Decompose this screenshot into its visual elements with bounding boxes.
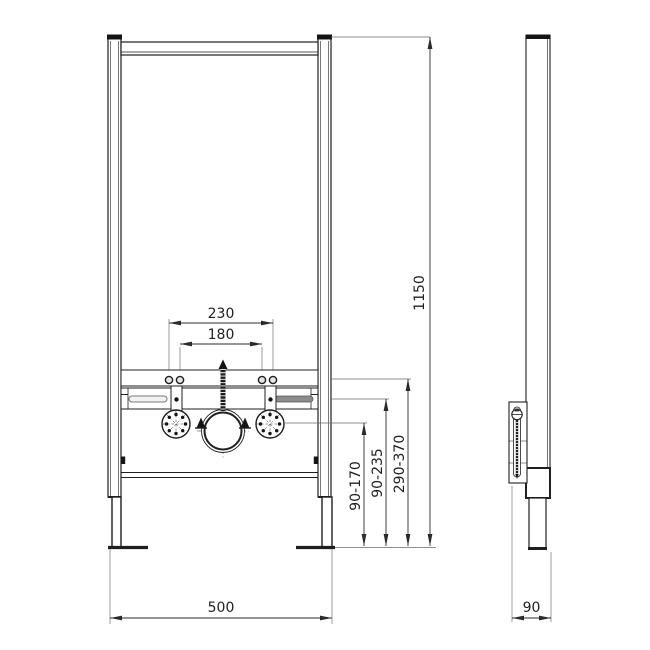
dim-label-230: 230 — [208, 306, 235, 322]
dim-label-90-235: 90-235 — [370, 448, 386, 498]
side-column — [526, 35, 551, 499]
left-foot — [108, 497, 148, 548]
fixing-bolt — [258, 376, 265, 383]
dim-label-290-370: 290-370 — [392, 435, 408, 494]
mounting-rail — [121, 388, 318, 409]
drawing-canvas: 230 180 1150 90-170 90-235 290-370 500 9… — [0, 0, 650, 650]
dim-label-180: 180 — [208, 327, 235, 343]
top-crossbeam — [121, 42, 318, 55]
side-view — [509, 35, 551, 550]
front-view — [107, 35, 335, 548]
foot-clamp-screws — [121, 457, 319, 465]
rail-slot-right — [275, 396, 313, 402]
dim-label-90: 90 — [523, 600, 541, 616]
left-post — [107, 35, 122, 498]
dim-label-90-170: 90-170 — [348, 461, 364, 511]
left-post-cap — [107, 35, 122, 40]
dim-label-1150: 1150 — [412, 275, 428, 311]
right-connection-flange — [256, 410, 284, 438]
lower-crossbar — [121, 473, 318, 478]
right-post — [317, 35, 332, 498]
fixing-bolt — [176, 376, 183, 383]
right-post-cap — [317, 35, 332, 40]
wall-bracket — [509, 402, 527, 483]
bidet-frame-technical-drawing: 230 180 1150 90-170 90-235 290-370 500 9… — [0, 0, 650, 650]
side-foot — [528, 498, 547, 549]
drain-pipe-clamp — [195, 405, 251, 458]
rail-slot-left — [129, 396, 167, 402]
dim-label-500: 500 — [208, 600, 235, 616]
fixing-bolt-bar — [121, 370, 318, 386]
right-foot — [296, 497, 335, 548]
left-connection-flange — [162, 410, 190, 438]
fixing-bolt — [269, 376, 276, 383]
side-column-cap — [526, 35, 551, 40]
fixing-bolt — [165, 376, 172, 383]
foot-socket — [526, 468, 550, 498]
